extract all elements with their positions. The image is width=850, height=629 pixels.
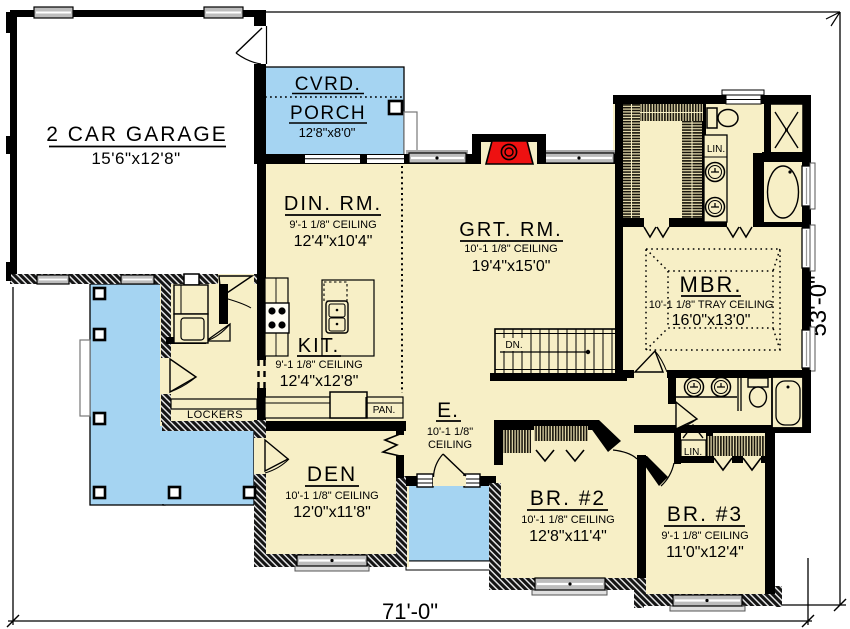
svg-text:2 CAR GARAGE: 2 CAR GARAGE [46, 123, 228, 146]
svg-text:KIT.: KIT. [298, 335, 340, 357]
svg-text:PORCH: PORCH [290, 103, 366, 124]
svg-text:71'-0": 71'-0" [382, 599, 438, 624]
svg-text:12'8"x8'0": 12'8"x8'0" [299, 125, 356, 140]
svg-text:11'0"x12'4": 11'0"x12'4" [666, 544, 744, 561]
svg-text:LOCKERS: LOCKERS [187, 409, 243, 421]
svg-text:BR. #2: BR. #2 [530, 487, 606, 510]
svg-text:12'4"x10'4": 12'4"x10'4" [294, 233, 373, 250]
svg-text:10'-1 1/8" CEILING: 10'-1 1/8" CEILING [521, 514, 614, 526]
svg-text:10'-1 1/8" TRAY CEILING: 10'-1 1/8" TRAY CEILING [649, 299, 774, 311]
svg-text:10'-1 1/8" CEILING: 10'-1 1/8" CEILING [285, 490, 378, 502]
svg-text:PAN.: PAN. [373, 405, 396, 416]
svg-text:DIN. RM.: DIN. RM. [284, 193, 382, 215]
svg-text:CEILING: CEILING [428, 439, 472, 451]
svg-text:15'6"x12'8": 15'6"x12'8" [91, 149, 180, 168]
svg-text:12'8"x11'4": 12'8"x11'4" [529, 528, 607, 545]
svg-text:E.: E. [437, 399, 459, 422]
svg-text:16'0"x13'0": 16'0"x13'0" [672, 312, 751, 329]
svg-text:LIN.: LIN. [707, 144, 725, 155]
svg-text:9'-1 1/8" CEILING: 9'-1 1/8" CEILING [275, 359, 362, 371]
svg-text:9'-1 1/8" CEILING: 9'-1 1/8" CEILING [289, 219, 376, 231]
svg-text:10'-1 1/8": 10'-1 1/8" [427, 426, 473, 438]
svg-text:DN.: DN. [505, 340, 522, 351]
svg-text:19'4"x15'0": 19'4"x15'0" [472, 258, 551, 275]
svg-text:MBR.: MBR. [680, 272, 743, 297]
svg-text:BR. #3: BR. #3 [667, 503, 743, 526]
svg-text:12'0"x11'8": 12'0"x11'8" [293, 504, 371, 521]
svg-text:10'-1 1/8" CEILING: 10'-1 1/8" CEILING [464, 243, 557, 255]
svg-text:12'4"x12'8": 12'4"x12'8" [280, 373, 359, 390]
svg-text:9'-1 1/8" CEILING: 9'-1 1/8" CEILING [661, 530, 748, 542]
svg-text:GRT. RM.: GRT. RM. [459, 219, 562, 241]
svg-text:DEN: DEN [307, 463, 357, 486]
svg-text:CVRD.: CVRD. [295, 74, 362, 95]
